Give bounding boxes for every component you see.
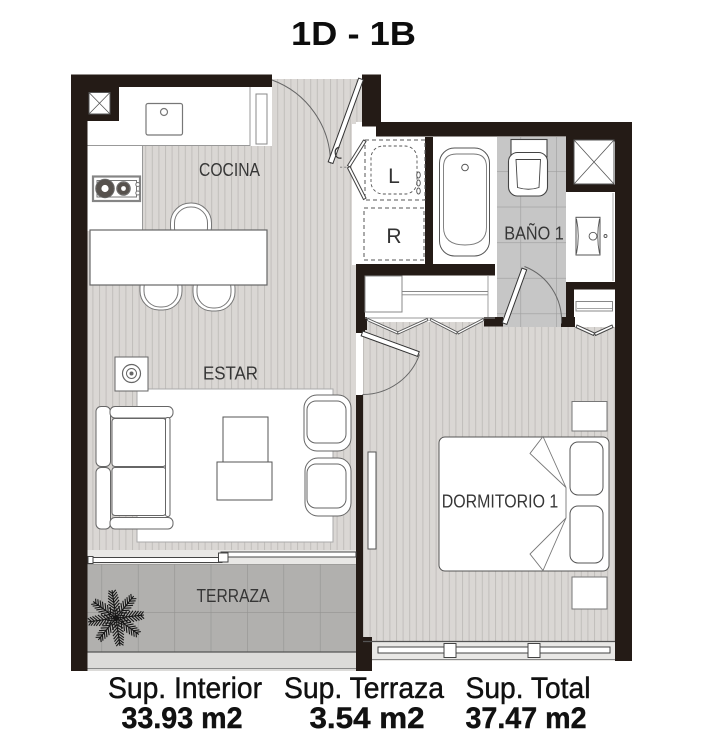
svg-text:Sup. Total: Sup. Total [466, 672, 591, 705]
svg-text:R: R [386, 225, 401, 248]
svg-text:33.93 m2: 33.93 m2 [122, 702, 243, 735]
svg-text:L: L [388, 165, 400, 188]
svg-text:ESTAR: ESTAR [203, 363, 258, 384]
svg-text:Sup. Terraza: Sup. Terraza [284, 672, 445, 705]
svg-text:DORMITORIO 1: DORMITORIO 1 [442, 490, 559, 511]
svg-text:37.47 m2: 37.47 m2 [466, 702, 587, 735]
svg-text:3.54 m2: 3.54 m2 [310, 702, 425, 735]
svg-text:1D - 1B: 1D - 1B [291, 15, 416, 52]
svg-text:TERRAZA: TERRAZA [197, 585, 271, 606]
svg-text:BAÑO 1: BAÑO 1 [504, 222, 564, 243]
svg-text:COCINA: COCINA [199, 159, 261, 180]
svg-text:Sup. Interior: Sup. Interior [108, 672, 262, 705]
